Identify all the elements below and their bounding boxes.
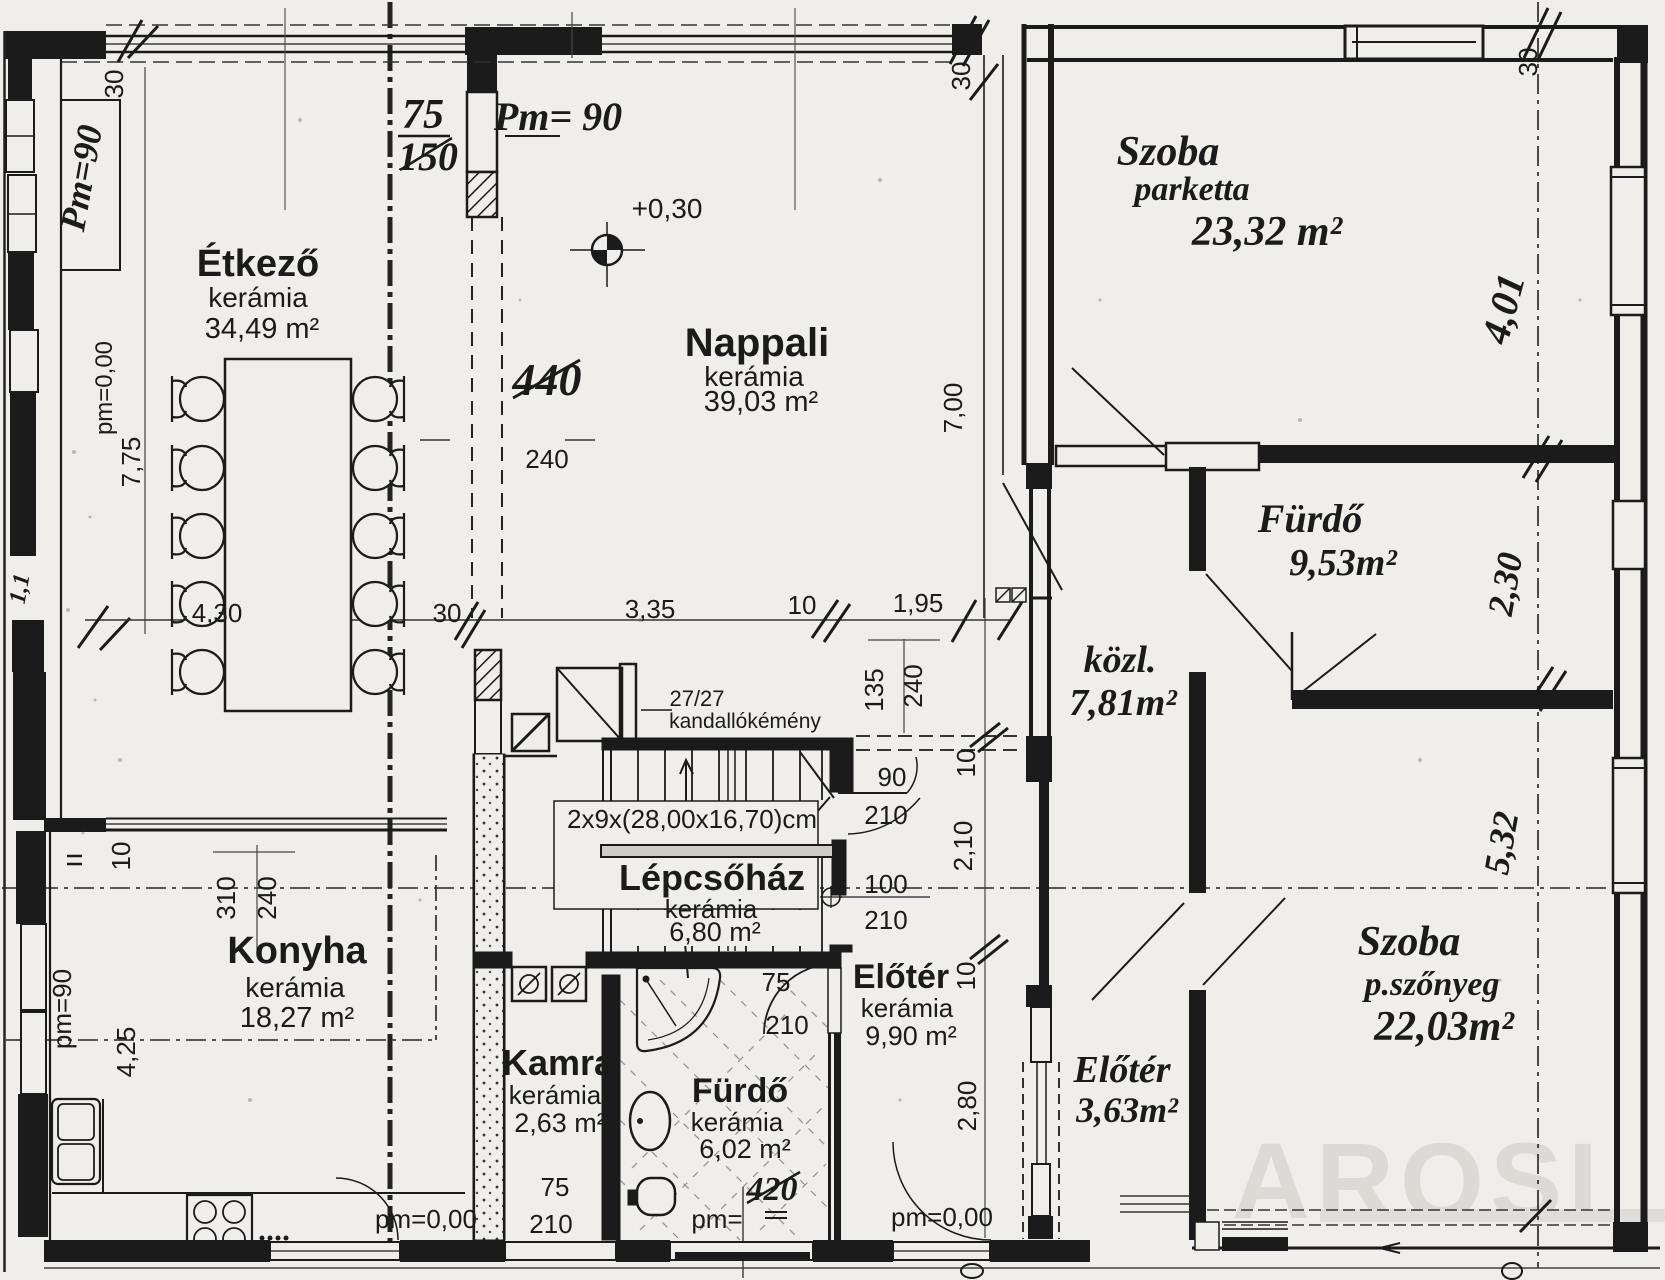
- svg-text:4,25: 4,25: [111, 1027, 141, 1078]
- svg-text:3,35: 3,35: [625, 594, 676, 624]
- svg-text:135: 135: [859, 668, 889, 711]
- svg-text:2,80: 2,80: [952, 1081, 982, 1132]
- svg-text:27/27: 27/27: [669, 686, 724, 711]
- svg-text:2,63 m²: 2,63 m²: [514, 1108, 606, 1138]
- svg-text:kerámia: kerámia: [245, 972, 345, 1003]
- svg-text:kandallókémény: kandallókémény: [669, 710, 821, 733]
- svg-text:210: 210: [864, 905, 907, 935]
- svg-text:75: 75: [762, 967, 791, 997]
- svg-text:pm=0,00: pm=0,00: [891, 1202, 993, 1232]
- svg-text:Pm= 90: Pm= 90: [493, 94, 622, 139]
- svg-text:90: 90: [878, 762, 907, 792]
- svg-text:Kamra: Kamra: [502, 1042, 615, 1083]
- svg-text:30: 30: [1513, 48, 1543, 77]
- svg-text:pm=0,00: pm=0,00: [375, 1204, 477, 1234]
- svg-text:parketta: parketta: [1131, 171, 1249, 208]
- svg-text:Szoba: Szoba: [1117, 129, 1220, 175]
- svg-text:Konyha: Konyha: [227, 930, 367, 972]
- svg-text:30: 30: [99, 70, 129, 99]
- svg-text:Étkező: Étkező: [197, 241, 319, 285]
- svg-text:7,75: 7,75: [116, 437, 146, 488]
- svg-text:10: 10: [788, 590, 817, 620]
- svg-text:Nappali: Nappali: [685, 321, 829, 365]
- svg-text:2x9x(28,00x16,70)cm: 2x9x(28,00x16,70)cm: [567, 804, 817, 834]
- svg-text:30: 30: [433, 598, 462, 628]
- svg-text:kerámia: kerámia: [509, 1080, 602, 1110]
- svg-text:9,53m²: 9,53m²: [1289, 542, 1398, 584]
- svg-text:39,03 m²: 39,03 m²: [704, 386, 819, 418]
- svg-text:pm=: pm=: [691, 1204, 742, 1234]
- svg-text:18,27 m²: 18,27 m²: [240, 1002, 355, 1034]
- svg-text:9,90 m²: 9,90 m²: [865, 1021, 957, 1051]
- svg-text:210: 210: [765, 1010, 808, 1040]
- svg-text:4,30: 4,30: [192, 598, 243, 628]
- svg-text:Lépcsőház: Lépcsőház: [619, 857, 805, 898]
- svg-text:210: 210: [864, 800, 907, 830]
- svg-text:p.szőnyeg: p.szőnyeg: [1361, 966, 1499, 1003]
- svg-text:7,00: 7,00: [938, 383, 968, 434]
- svg-text:240: 240: [898, 664, 928, 707]
- svg-text:Fürdő: Fürdő: [1257, 496, 1365, 541]
- svg-text:AROSI: AROSI: [1232, 1120, 1604, 1241]
- svg-text:100: 100: [864, 869, 907, 899]
- svg-text:10: 10: [951, 749, 981, 778]
- svg-text:1,1: 1,1: [5, 572, 36, 606]
- svg-text:Előtér: Előtér: [853, 958, 949, 996]
- svg-text:10: 10: [106, 842, 136, 871]
- svg-text:kerámia: kerámia: [691, 1107, 784, 1137]
- svg-text:közl.: közl.: [1084, 639, 1157, 681]
- svg-text:Előtér: Előtér: [1072, 1049, 1171, 1091]
- svg-text:30: 30: [946, 62, 976, 91]
- svg-text:310: 310: [211, 876, 241, 919]
- svg-text:75: 75: [541, 1172, 570, 1202]
- svg-text:3,63m²: 3,63m²: [1075, 1090, 1179, 1130]
- svg-text:pm=0,00: pm=0,00: [91, 341, 118, 435]
- svg-text:210: 210: [529, 1209, 572, 1239]
- svg-text:kerámia: kerámia: [208, 282, 308, 313]
- svg-text:6,02 m²: 6,02 m²: [699, 1134, 791, 1164]
- svg-text:240: 240: [252, 876, 282, 919]
- svg-text:kerámia: kerámia: [861, 993, 954, 1023]
- svg-text:7,81m²: 7,81m²: [1069, 682, 1178, 724]
- svg-text:10: 10: [951, 962, 981, 991]
- svg-text:23,32 m²: 23,32 m²: [1191, 209, 1344, 255]
- svg-text:240: 240: [525, 444, 568, 474]
- svg-text:+0,30: +0,30: [632, 193, 703, 224]
- svg-text:Szoba: Szoba: [1358, 919, 1461, 965]
- svg-text:pm=90: pm=90: [47, 969, 77, 1049]
- svg-text:1,95: 1,95: [893, 588, 944, 618]
- svg-text:6,80 m²: 6,80 m²: [669, 917, 761, 947]
- svg-text:34,49 m²: 34,49 m²: [205, 313, 320, 345]
- svg-text:75: 75: [402, 92, 444, 138]
- svg-text:Fürdő: Fürdő: [692, 1072, 788, 1110]
- svg-text:22,03m²: 22,03m²: [1373, 1004, 1515, 1050]
- svg-text:2,10: 2,10: [948, 821, 978, 872]
